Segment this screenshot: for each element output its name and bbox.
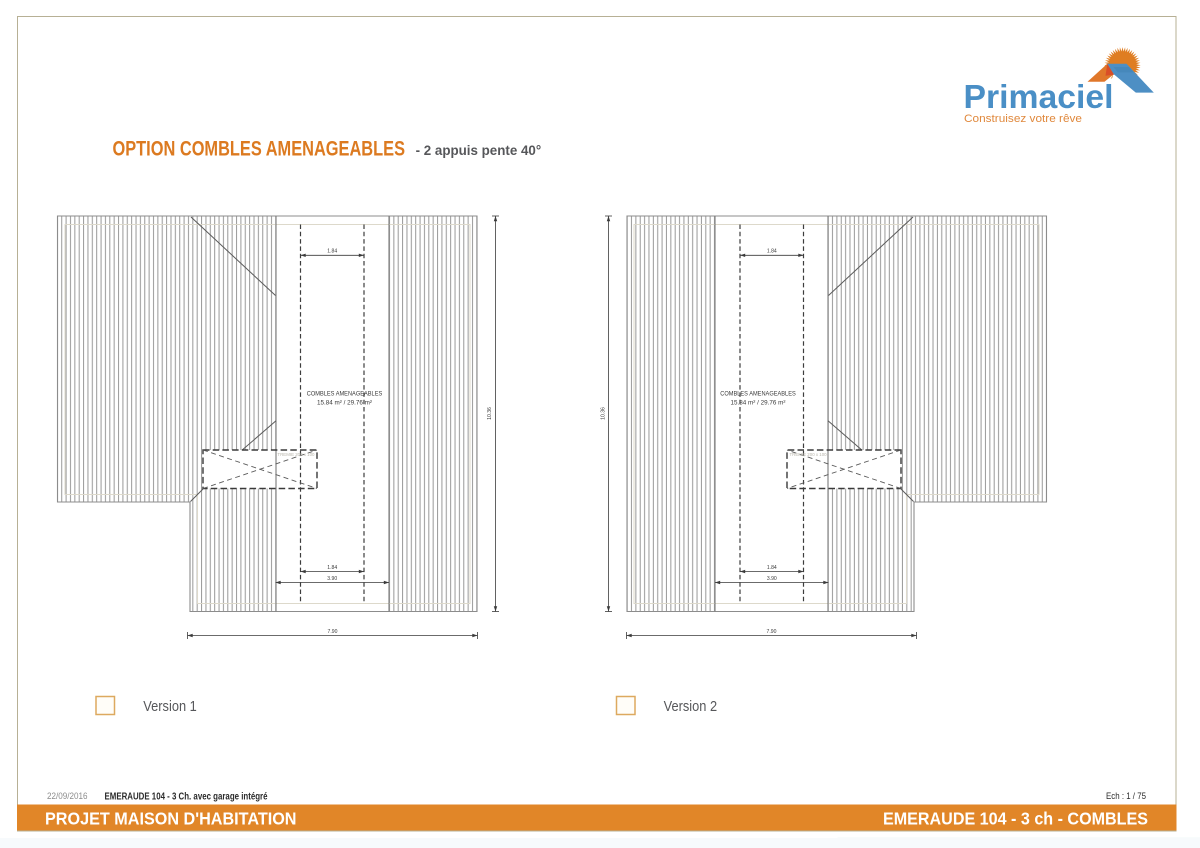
svg-text:Primaciel: Primaciel — [964, 79, 1114, 116]
svg-text:22/09/2016: 22/09/2016 — [47, 791, 88, 802]
svg-text:15.84 m² / 29.76 m²: 15.84 m² / 29.76 m² — [317, 400, 372, 407]
svg-text:TREMIE 200 x 100: TREMIE 200 x 100 — [790, 452, 828, 457]
svg-text:EMERAUDE 104 - 3 Ch. avec gara: EMERAUDE 104 - 3 Ch. avec garage intégré — [105, 792, 268, 803]
svg-text:1.84: 1.84 — [327, 249, 337, 255]
svg-text:Ech : 1 / 75: Ech : 1 / 75 — [1106, 791, 1146, 802]
svg-text:Version 2: Version 2 — [664, 699, 718, 715]
svg-text:10.36: 10.36 — [487, 407, 493, 420]
svg-text:15.84 m² / 29.76 m²: 15.84 m² / 29.76 m² — [731, 400, 786, 407]
svg-text:3.90: 3.90 — [327, 576, 337, 582]
svg-text:1.84: 1.84 — [767, 565, 777, 571]
svg-text:10.36: 10.36 — [601, 407, 607, 420]
svg-text:3.90: 3.90 — [767, 576, 777, 582]
svg-text:7.90: 7.90 — [767, 629, 777, 635]
svg-text:1.84: 1.84 — [327, 565, 337, 571]
svg-text:Version 1: Version 1 — [143, 699, 197, 715]
svg-text:1.84: 1.84 — [767, 249, 777, 255]
svg-text:PROJET MAISON D'HABITATION: PROJET MAISON D'HABITATION — [45, 808, 297, 828]
svg-text:Construisez votre rêve: Construisez votre rêve — [964, 113, 1082, 125]
svg-text:7.90: 7.90 — [328, 629, 338, 635]
svg-text:EMERAUDE 104 - 3 ch - COMBLES: EMERAUDE 104 - 3 ch - COMBLES — [883, 808, 1148, 828]
svg-text:TREMIE 200 x 100: TREMIE 200 x 100 — [277, 452, 315, 457]
svg-text:COMBLES AMENAGEABLES: COMBLES AMENAGEABLES — [307, 390, 383, 397]
svg-text:OPTION COMBLES AMENAGEABLES: OPTION COMBLES AMENAGEABLES — [113, 137, 406, 160]
svg-text:COMBLES AMENAGEABLES: COMBLES AMENAGEABLES — [720, 390, 796, 397]
svg-text:- 2 appuis pente 40°: - 2 appuis pente 40° — [416, 143, 542, 159]
